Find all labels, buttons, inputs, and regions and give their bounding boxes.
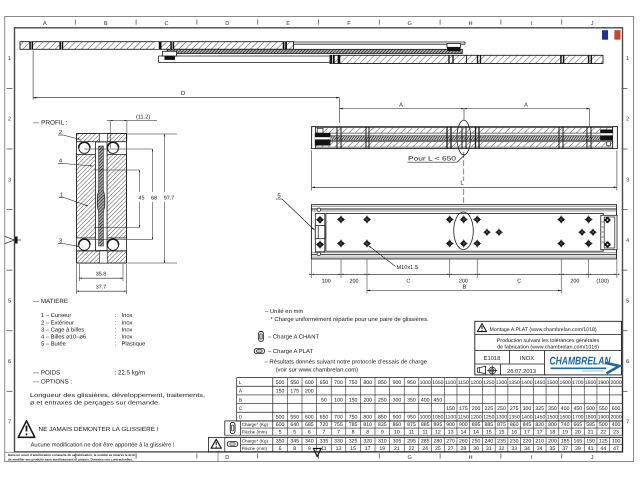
svg-text:285: 285 bbox=[421, 439, 430, 445]
svg-text:E: E bbox=[286, 21, 290, 27]
svg-text:250: 250 bbox=[472, 439, 481, 445]
svg-text:125: 125 bbox=[599, 439, 608, 445]
svg-text:150: 150 bbox=[276, 389, 285, 395]
svg-text:24: 24 bbox=[422, 446, 428, 452]
svg-text:3: 3 bbox=[626, 177, 629, 183]
svg-text:9: 9 bbox=[308, 446, 311, 452]
svg-text:G: G bbox=[408, 21, 412, 27]
svg-text:280: 280 bbox=[434, 439, 443, 445]
svg-text:B: B bbox=[104, 21, 108, 27]
svg-text:1700: 1700 bbox=[572, 415, 583, 421]
svg-text:– Charge A CHANT: – Charge A CHANT bbox=[268, 333, 319, 340]
svg-text:895: 895 bbox=[434, 422, 443, 428]
svg-text:4: 4 bbox=[626, 238, 629, 244]
svg-text:– Charge A PLAT: – Charge A PLAT bbox=[268, 348, 313, 355]
svg-text:875: 875 bbox=[407, 422, 416, 428]
svg-text:6: 6 bbox=[308, 429, 311, 435]
svg-text:740: 740 bbox=[561, 422, 570, 428]
svg-text:— MATIERE: — MATIERE bbox=[33, 298, 68, 305]
svg-text:1: 1 bbox=[8, 56, 11, 62]
svg-text:665: 665 bbox=[574, 422, 583, 428]
svg-text:44: 44 bbox=[600, 446, 606, 452]
svg-text:(11.2): (11.2) bbox=[136, 114, 150, 121]
svg-text:12: 12 bbox=[435, 429, 441, 435]
svg-text:350: 350 bbox=[276, 439, 285, 445]
svg-text:21: 21 bbox=[588, 429, 594, 435]
svg-text:750: 750 bbox=[349, 415, 358, 421]
svg-text:35: 35 bbox=[550, 446, 556, 452]
svg-text:185: 185 bbox=[561, 439, 570, 445]
svg-text:34: 34 bbox=[537, 446, 543, 452]
svg-text:1600: 1600 bbox=[560, 380, 571, 386]
svg-text:210: 210 bbox=[535, 439, 544, 445]
svg-text:(100): (100) bbox=[596, 278, 609, 284]
svg-text:19: 19 bbox=[379, 446, 385, 452]
svg-text:Inox: Inox bbox=[122, 313, 133, 319]
svg-text:Pour L < 650: Pour L < 650 bbox=[408, 155, 457, 162]
svg-text:H: H bbox=[468, 455, 472, 461]
svg-text:22: 22 bbox=[600, 429, 606, 435]
svg-text:7: 7 bbox=[8, 420, 11, 426]
svg-text:700: 700 bbox=[334, 415, 343, 421]
svg-text:8: 8 bbox=[366, 429, 369, 435]
svg-text:(voir sur www.chambrelan.com: (voir sur www.chambrelan.com) bbox=[276, 366, 359, 373]
svg-text:Longueur des glissières, dé: Longueur des glissières, développement, … bbox=[30, 392, 205, 399]
svg-text:de fabrication (www.chambrel: de fabrication (www.chambrelan.com/1016) bbox=[497, 345, 599, 351]
svg-text:820: 820 bbox=[535, 422, 544, 428]
svg-text:270: 270 bbox=[446, 439, 455, 445]
svg-text:Charge* (Kg): Charge* (Kg) bbox=[242, 422, 269, 427]
svg-text:550: 550 bbox=[290, 380, 299, 386]
svg-text:275: 275 bbox=[510, 406, 519, 412]
svg-text:Flèche (mm): Flèche (mm) bbox=[242, 429, 268, 434]
svg-text:100: 100 bbox=[322, 278, 331, 284]
svg-text:F: F bbox=[347, 21, 351, 27]
svg-text:400: 400 bbox=[561, 406, 570, 412]
svg-text:16: 16 bbox=[511, 429, 517, 435]
svg-text:1 – Curseur: 1 – Curseur bbox=[41, 312, 71, 319]
svg-text:150: 150 bbox=[446, 406, 455, 412]
svg-text:310: 310 bbox=[378, 439, 387, 445]
svg-text:28: 28 bbox=[460, 446, 466, 452]
svg-text:19: 19 bbox=[562, 429, 568, 435]
svg-text:45: 45 bbox=[139, 195, 145, 201]
svg-text:2 – Extérieur: 2 – Extérieur bbox=[41, 319, 74, 326]
svg-text:15: 15 bbox=[499, 429, 505, 435]
svg-text:100: 100 bbox=[612, 439, 621, 445]
svg-text:845: 845 bbox=[523, 422, 532, 428]
svg-text:15: 15 bbox=[486, 429, 492, 435]
svg-text:500: 500 bbox=[586, 406, 595, 412]
svg-text:C: C bbox=[239, 406, 243, 412]
svg-text:335: 335 bbox=[320, 439, 329, 445]
svg-text:11: 11 bbox=[422, 429, 427, 435]
svg-text:225: 225 bbox=[484, 406, 493, 412]
svg-text:785: 785 bbox=[349, 422, 358, 428]
svg-text:400: 400 bbox=[421, 397, 430, 403]
svg-text:D: D bbox=[239, 415, 243, 421]
svg-text:J: J bbox=[591, 455, 594, 461]
svg-text:31: 31 bbox=[486, 446, 492, 452]
svg-text:23: 23 bbox=[613, 429, 619, 435]
svg-text:175: 175 bbox=[459, 406, 468, 412]
svg-text:34: 34 bbox=[524, 446, 530, 452]
svg-text:250: 250 bbox=[378, 397, 387, 403]
svg-text:Inox: Inox bbox=[122, 335, 133, 341]
svg-text:950: 950 bbox=[407, 415, 416, 421]
svg-text:600: 600 bbox=[305, 380, 314, 386]
svg-text:– Résultats donnés suivant: – Résultats donnés suivant notre protoco… bbox=[265, 358, 428, 365]
svg-text:200: 200 bbox=[350, 278, 359, 284]
svg-text:A: A bbox=[43, 21, 47, 27]
svg-text:1500: 1500 bbox=[547, 380, 558, 386]
svg-text:1350: 1350 bbox=[509, 380, 520, 386]
svg-text:585: 585 bbox=[586, 422, 595, 428]
svg-text:1000: 1000 bbox=[420, 380, 431, 386]
svg-text:C: C bbox=[517, 278, 521, 284]
svg-text:720: 720 bbox=[320, 422, 329, 428]
svg-text:260: 260 bbox=[459, 439, 468, 445]
svg-text:B: B bbox=[463, 284, 467, 290]
svg-text:305: 305 bbox=[393, 439, 402, 445]
svg-text:9: 9 bbox=[381, 429, 384, 435]
svg-text:450: 450 bbox=[434, 397, 443, 403]
svg-text:1400: 1400 bbox=[521, 415, 532, 421]
svg-text:240: 240 bbox=[484, 439, 493, 445]
svg-text:1900: 1900 bbox=[598, 380, 609, 386]
svg-text:600: 600 bbox=[305, 415, 314, 421]
svg-text:20: 20 bbox=[575, 429, 581, 435]
svg-text:1100: 1100 bbox=[445, 415, 456, 421]
svg-text:340: 340 bbox=[305, 439, 314, 445]
svg-text:17: 17 bbox=[365, 446, 371, 452]
svg-text:500: 500 bbox=[276, 415, 285, 421]
svg-text:5: 5 bbox=[626, 298, 629, 304]
svg-text:E1018: E1018 bbox=[484, 355, 501, 362]
svg-text:* Charge uniformément répa: * Charge uniformément répartie pour une … bbox=[271, 316, 430, 323]
svg-text:17: 17 bbox=[537, 429, 543, 435]
svg-text:860: 860 bbox=[393, 422, 402, 428]
svg-text:900: 900 bbox=[459, 422, 468, 428]
svg-text:Plastique: Plastique bbox=[122, 341, 146, 348]
svg-text:18: 18 bbox=[550, 429, 556, 435]
svg-text:650: 650 bbox=[320, 415, 329, 421]
svg-text:900: 900 bbox=[393, 415, 402, 421]
svg-text:1250: 1250 bbox=[483, 380, 494, 386]
svg-text:550: 550 bbox=[290, 415, 299, 421]
svg-text:500: 500 bbox=[599, 422, 608, 428]
svg-text:1200: 1200 bbox=[470, 415, 481, 421]
svg-text:7: 7 bbox=[337, 429, 340, 435]
svg-text:235: 235 bbox=[497, 439, 506, 445]
svg-text:D: D bbox=[181, 90, 186, 97]
svg-text:3 – Cage à billes: 3 – Cage à billes bbox=[41, 326, 84, 333]
svg-text:47: 47 bbox=[613, 446, 619, 452]
svg-text:27: 27 bbox=[448, 446, 454, 452]
svg-text:17: 17 bbox=[524, 429, 530, 435]
svg-text:1600: 1600 bbox=[560, 415, 571, 421]
svg-text:220: 220 bbox=[523, 439, 532, 445]
svg-text:850: 850 bbox=[378, 380, 387, 386]
svg-text:H: H bbox=[468, 21, 472, 27]
svg-text:41: 41 bbox=[588, 446, 594, 452]
svg-text:5: 5 bbox=[293, 429, 296, 435]
svg-text:– Unité en mm: – Unité en mm bbox=[265, 308, 303, 315]
svg-text:755: 755 bbox=[334, 422, 343, 428]
svg-text:2: 2 bbox=[626, 117, 629, 123]
svg-text:330: 330 bbox=[334, 439, 343, 445]
svg-text:A: A bbox=[524, 102, 528, 108]
svg-text:14: 14 bbox=[460, 429, 466, 435]
svg-text:885: 885 bbox=[484, 422, 493, 428]
svg-text:37: 37 bbox=[562, 446, 568, 452]
svg-text:21: 21 bbox=[394, 446, 400, 452]
svg-text:G: G bbox=[408, 455, 412, 461]
svg-text:345: 345 bbox=[290, 439, 299, 445]
svg-text:— POIDS: — POIDS bbox=[33, 370, 60, 377]
svg-text:295: 295 bbox=[407, 439, 416, 445]
svg-text:400: 400 bbox=[612, 422, 621, 428]
svg-text:2000: 2000 bbox=[610, 380, 621, 386]
svg-text:CHAMBRELAN: CHAMBRELAN bbox=[550, 355, 612, 367]
svg-text:1300: 1300 bbox=[496, 415, 507, 421]
svg-text:39: 39 bbox=[575, 446, 581, 452]
svg-text:1800: 1800 bbox=[585, 380, 596, 386]
svg-text:700: 700 bbox=[334, 380, 343, 386]
svg-text:200: 200 bbox=[548, 439, 557, 445]
svg-text:350: 350 bbox=[548, 406, 557, 412]
svg-text:1100: 1100 bbox=[445, 380, 456, 386]
svg-text:Inox: Inox bbox=[122, 320, 133, 326]
svg-text:6: 6 bbox=[626, 359, 629, 365]
svg-text:1150: 1150 bbox=[458, 380, 469, 386]
svg-text:1900: 1900 bbox=[598, 415, 609, 421]
svg-text:32: 32 bbox=[499, 446, 505, 452]
svg-text:300: 300 bbox=[523, 406, 532, 412]
svg-text:L: L bbox=[239, 380, 242, 386]
svg-text:4 – Billes ø10–ø6: 4 – Billes ø10–ø6 bbox=[41, 334, 86, 341]
svg-text:600: 600 bbox=[276, 422, 285, 428]
svg-text:— OPTIONS :: — OPTIONS : bbox=[33, 379, 72, 386]
svg-text:100: 100 bbox=[334, 397, 343, 403]
svg-text:Charge* (Kg): Charge* (Kg) bbox=[242, 439, 269, 444]
svg-text:1700: 1700 bbox=[572, 380, 583, 386]
svg-text:1050: 1050 bbox=[432, 380, 443, 386]
svg-text:7: 7 bbox=[626, 420, 629, 426]
svg-text:M10x1.5: M10x1.5 bbox=[397, 265, 418, 271]
svg-text:500: 500 bbox=[276, 380, 285, 386]
svg-text:Inox: Inox bbox=[122, 327, 133, 333]
svg-text:300: 300 bbox=[393, 397, 402, 403]
svg-text:35.8: 35.8 bbox=[96, 271, 107, 277]
svg-text:26.07.2013: 26.07.2013 bbox=[507, 368, 536, 375]
svg-text:8: 8 bbox=[293, 446, 296, 452]
svg-text:200: 200 bbox=[363, 397, 372, 403]
svg-text:875: 875 bbox=[497, 422, 506, 428]
svg-text:13: 13 bbox=[336, 446, 342, 452]
svg-text:J: J bbox=[591, 21, 594, 27]
svg-text:5 – Butée: 5 – Butée bbox=[41, 341, 66, 348]
svg-text:68: 68 bbox=[151, 195, 157, 201]
svg-text:de modifier ses produits s: de modifier ses produits sans avertissem… bbox=[8, 457, 133, 461]
svg-text:NE JAMAIS DEMONTER LA GLIS: NE JAMAIS DEMONTER LA GLISSIERE ! bbox=[39, 426, 159, 433]
svg-text:1450: 1450 bbox=[534, 415, 545, 421]
svg-text:810: 810 bbox=[363, 422, 372, 428]
svg-text:450: 450 bbox=[574, 406, 583, 412]
svg-text:A: A bbox=[399, 102, 403, 108]
svg-text:1350: 1350 bbox=[509, 415, 520, 421]
svg-text:1150: 1150 bbox=[458, 415, 469, 421]
svg-text:1250: 1250 bbox=[483, 415, 494, 421]
svg-text:2: 2 bbox=[8, 117, 11, 123]
svg-text:1500: 1500 bbox=[547, 415, 558, 421]
svg-text:685: 685 bbox=[305, 422, 314, 428]
svg-text:950: 950 bbox=[407, 380, 416, 386]
svg-text:1450: 1450 bbox=[534, 380, 545, 386]
svg-text:1800: 1800 bbox=[585, 415, 596, 421]
svg-text:200: 200 bbox=[472, 406, 481, 412]
svg-text:640: 640 bbox=[290, 422, 299, 428]
svg-text:895: 895 bbox=[472, 422, 481, 428]
svg-text:200: 200 bbox=[570, 278, 579, 284]
svg-text:8: 8 bbox=[352, 429, 355, 435]
svg-text:1: 1 bbox=[626, 56, 629, 62]
svg-text:350: 350 bbox=[407, 397, 416, 403]
svg-text:33: 33 bbox=[511, 446, 517, 452]
svg-text:850: 850 bbox=[378, 415, 387, 421]
svg-text:835: 835 bbox=[378, 422, 387, 428]
svg-text:1000: 1000 bbox=[420, 415, 431, 421]
svg-text:: 22.5 kg/m: : 22.5 kg/m bbox=[115, 370, 146, 377]
svg-text:6: 6 bbox=[8, 359, 11, 365]
svg-text:Flèche (mm): Flèche (mm) bbox=[242, 446, 268, 451]
svg-text:C: C bbox=[164, 21, 168, 27]
svg-text:800: 800 bbox=[548, 422, 557, 428]
svg-text:11: 11 bbox=[321, 446, 326, 452]
svg-text:1050: 1050 bbox=[432, 415, 443, 421]
svg-text:5: 5 bbox=[8, 298, 11, 304]
svg-text:900: 900 bbox=[446, 422, 455, 428]
svg-text:22: 22 bbox=[409, 446, 415, 452]
svg-text:2000: 2000 bbox=[610, 415, 621, 421]
svg-text:30: 30 bbox=[473, 446, 479, 452]
svg-text:INOX: INOX bbox=[520, 355, 534, 362]
svg-text:750: 750 bbox=[349, 380, 358, 386]
svg-text:860: 860 bbox=[510, 422, 519, 428]
svg-text:14: 14 bbox=[473, 429, 479, 435]
svg-text:97.7: 97.7 bbox=[164, 195, 175, 201]
svg-text:650: 650 bbox=[320, 380, 329, 386]
svg-text:800: 800 bbox=[363, 380, 372, 386]
svg-text:885: 885 bbox=[421, 422, 430, 428]
svg-text:7: 7 bbox=[322, 429, 325, 435]
svg-text:10: 10 bbox=[394, 429, 400, 435]
svg-text:1300: 1300 bbox=[496, 380, 507, 386]
svg-text:550: 550 bbox=[599, 406, 608, 412]
svg-text:1200: 1200 bbox=[470, 380, 481, 386]
svg-text:250: 250 bbox=[497, 406, 506, 412]
svg-text:11: 11 bbox=[409, 429, 414, 435]
svg-text:Montage A PLAT (www.chambre: Montage A PLAT (www.chambrelan.com/1018) bbox=[490, 327, 597, 333]
svg-text:230: 230 bbox=[510, 439, 519, 445]
svg-text:800: 800 bbox=[363, 415, 372, 421]
svg-text:50: 50 bbox=[321, 397, 327, 403]
svg-text:150: 150 bbox=[349, 397, 358, 403]
svg-text:C: C bbox=[406, 278, 410, 284]
svg-text:325: 325 bbox=[349, 439, 358, 445]
svg-text:5: 5 bbox=[279, 429, 282, 435]
svg-text:Production suivant les tolé: Production suivant les tolérances généra… bbox=[497, 338, 600, 344]
svg-text:25: 25 bbox=[435, 446, 441, 452]
svg-text:B: B bbox=[239, 397, 242, 403]
svg-text:900: 900 bbox=[393, 380, 402, 386]
svg-text:Aucune modification ne doit: Aucune modification ne doit être apporté… bbox=[31, 442, 175, 449]
svg-text:600: 600 bbox=[612, 406, 621, 412]
svg-text:175: 175 bbox=[290, 389, 299, 395]
svg-text:13: 13 bbox=[448, 429, 454, 435]
svg-text:200: 200 bbox=[305, 389, 314, 395]
svg-text:325: 325 bbox=[535, 406, 544, 412]
svg-text:15: 15 bbox=[350, 446, 356, 452]
svg-text:37.7: 37.7 bbox=[96, 284, 107, 290]
svg-text:D: D bbox=[225, 455, 229, 461]
svg-text:6: 6 bbox=[279, 446, 282, 452]
svg-text:D: D bbox=[225, 21, 229, 27]
svg-text:320: 320 bbox=[363, 439, 372, 445]
svg-text:3: 3 bbox=[8, 177, 11, 183]
svg-text:150: 150 bbox=[586, 439, 595, 445]
svg-text:1400: 1400 bbox=[521, 380, 532, 386]
svg-text:165: 165 bbox=[574, 439, 583, 445]
svg-text:ø et entraxes de perçages: ø et entraxes de perçages sur demande. bbox=[30, 400, 160, 407]
svg-text:— PROFIL :: — PROFIL : bbox=[33, 120, 68, 127]
